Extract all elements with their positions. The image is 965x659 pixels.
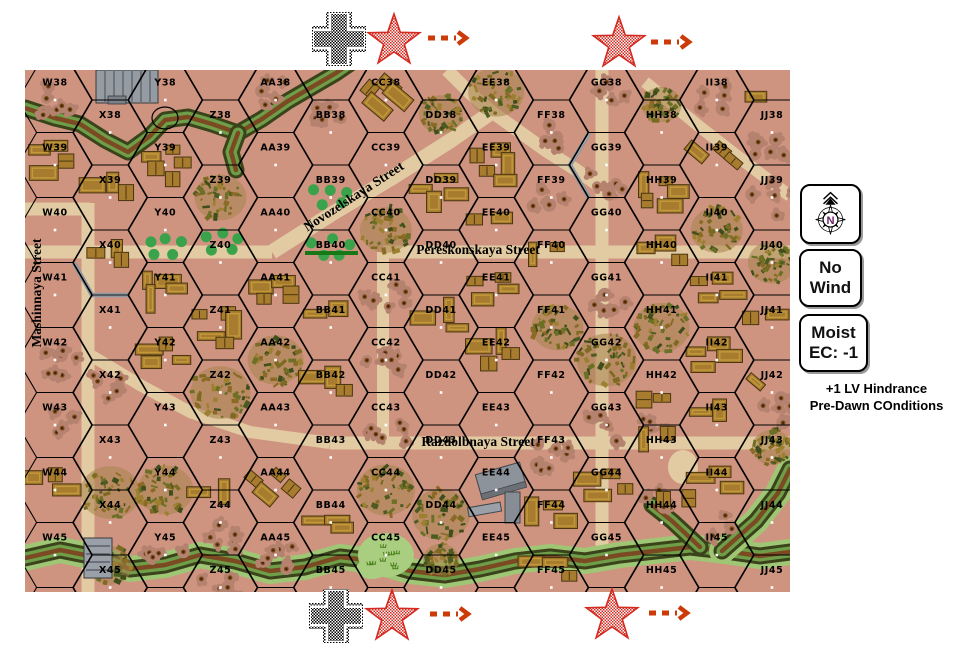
svg-text:Z41: Z41 [209,305,231,316]
svg-text:FF45: FF45 [537,565,566,576]
svg-text:Z42: Z42 [209,370,231,381]
svg-text:X39: X39 [99,175,121,186]
soviet-star-counter [366,590,417,639]
svg-text:EE39: EE39 [482,143,511,154]
svg-text:Z45: Z45 [209,565,231,576]
soviet-star-counter [368,14,419,63]
svg-text:II39: II39 [705,143,728,154]
svg-text:GG45: GG45 [591,533,622,544]
advance-arrow [430,608,468,620]
svg-text:X41: X41 [99,305,121,316]
svg-text:Y39: Y39 [153,143,176,154]
svg-text:EE41: EE41 [482,273,511,284]
svg-text:HH45: HH45 [646,565,678,576]
svg-text:W45: W45 [42,533,68,544]
advance-arrow [649,607,687,619]
svg-text:FF43: FF43 [537,435,566,446]
svg-text:II42: II42 [705,338,728,349]
svg-text:FF41: FF41 [537,305,566,316]
svg-text:AA39: AA39 [260,143,290,154]
svg-text:CC45: CC45 [371,533,401,544]
svg-text:X40: X40 [99,240,121,251]
svg-text:JJ38: JJ38 [760,110,784,121]
svg-text:FF44: FF44 [537,500,566,511]
svg-text:Y44: Y44 [153,468,176,479]
svg-text:BB43: BB43 [316,435,346,446]
svg-text:II44: II44 [705,468,728,479]
svg-text:GG38: GG38 [591,78,622,89]
svg-text:II38: II38 [705,78,728,89]
svg-text:Y42: Y42 [153,338,176,349]
environment-conditions-button[interactable]: Moist EC: -1 [799,314,868,372]
svg-text:BB40: BB40 [316,240,346,251]
svg-text:DD42: DD42 [425,370,456,381]
svg-text:BB45: BB45 [316,565,346,576]
german-cross-counter [312,12,366,66]
game-map[interactable]: W38W39W40W41W42W43W44W45X38X39X40X41X42X… [25,70,790,592]
svg-text:HH40: HH40 [646,240,678,251]
svg-text:CC40: CC40 [371,208,401,219]
svg-text:Y41: Y41 [153,273,176,284]
compass-rose-icon: N [804,188,857,240]
svg-text:DD44: DD44 [425,500,456,511]
svg-text:Z38: Z38 [209,110,231,121]
soviet-star-counter [593,17,644,66]
svg-text:HH38: HH38 [646,110,678,121]
svg-text:FF39: FF39 [537,175,566,186]
svg-text:W44: W44 [42,468,68,479]
svg-text:W41: W41 [42,273,68,284]
svg-text:JJ43: JJ43 [760,435,784,446]
svg-text:EE45: EE45 [482,533,511,544]
svg-text:HH41: HH41 [646,305,678,316]
svg-text:BB42: BB42 [316,370,346,381]
wind-line2: Wind [810,278,851,298]
svg-text:Mashinnaya Street: Mashinnaya Street [29,238,44,347]
north-compass-button[interactable]: N [800,184,861,244]
svg-text:AA44: AA44 [260,468,290,479]
svg-text:FF42: FF42 [537,370,566,381]
svg-text:JJ42: JJ42 [760,370,784,381]
svg-text:II40: II40 [705,208,728,219]
german-cross-counter [309,589,363,643]
svg-text:GG43: GG43 [591,403,622,414]
svg-text:DD41: DD41 [425,305,456,316]
svg-text:X43: X43 [99,435,121,446]
svg-text:BB38: BB38 [316,110,346,121]
svg-text:Z43: Z43 [209,435,231,446]
svg-text:X45: X45 [99,565,121,576]
svg-text:JJ45: JJ45 [760,565,784,576]
svg-text:AA38: AA38 [260,78,290,89]
svg-text:GG42: GG42 [591,338,622,349]
svg-text:Z40: Z40 [209,240,231,251]
svg-text:HH42: HH42 [646,370,678,381]
advance-arrow [428,32,466,44]
svg-text:EE42: EE42 [482,338,511,349]
svg-text:Z44: Z44 [209,500,231,511]
map-layers: W38W39W40W41W42W43W44W45X38X39X40X41X42X… [25,70,790,592]
svg-text:Y43: Y43 [153,403,176,414]
svg-text:EE43: EE43 [482,403,511,414]
svg-text:JJ39: JJ39 [760,175,784,186]
soviet-star-counter [586,589,637,638]
svg-text:BB41: BB41 [316,305,346,316]
svg-text:GG41: GG41 [591,273,622,284]
svg-text:AA40: AA40 [260,208,290,219]
svg-text:X38: X38 [99,110,121,121]
svg-text:AA41: AA41 [260,273,290,284]
svg-text:HH39: HH39 [646,175,678,186]
vasl-game-window: W38W39W40W41W42W43W44W45X38X39X40X41X42X… [0,0,965,659]
svg-text:BB44: BB44 [316,500,346,511]
svg-text:W43: W43 [42,403,68,414]
svg-text:CC44: CC44 [371,468,401,479]
svg-text:CC38: CC38 [371,78,401,89]
svg-text:AA45: AA45 [260,533,290,544]
svg-text:CC41: CC41 [371,273,401,284]
svg-text:GG44: GG44 [591,468,622,479]
svg-text:GG39: GG39 [591,143,622,154]
svg-text:W42: W42 [42,338,68,349]
svg-text:Razdolbnaya Street: Razdolbnaya Street [421,434,535,449]
svg-text:CC39: CC39 [371,143,401,154]
svg-text:HH43: HH43 [646,435,678,446]
svg-text:AA42: AA42 [260,338,290,349]
svg-text:W40: W40 [42,208,68,219]
svg-text:EE38: EE38 [482,78,511,89]
svg-text:EE40: EE40 [482,208,511,219]
svg-text:Y38: Y38 [153,78,176,89]
svg-text:CC42: CC42 [371,338,401,349]
ec-line1: Moist [811,323,855,343]
svg-text:GG40: GG40 [591,208,622,219]
svg-text:JJ44: JJ44 [760,500,784,511]
scenario-conditions-note: +1 LV Hindrance Pre-Dawn COnditions [788,380,965,414]
svg-text:EE44: EE44 [482,468,511,479]
svg-text:X42: X42 [99,370,121,381]
note-line1: +1 LV Hindrance [788,380,965,397]
note-line2: Pre-Dawn COnditions [788,397,965,414]
svg-text:Y45: Y45 [153,533,176,544]
svg-text:II43: II43 [705,403,728,414]
svg-text:Z39: Z39 [209,175,231,186]
compass-north-label: N [826,215,834,227]
wind-status-button[interactable]: No Wind [799,249,862,307]
wind-line1: No [819,258,842,278]
svg-text:W38: W38 [42,78,68,89]
svg-text:II45: II45 [705,533,728,544]
svg-text:X44: X44 [99,500,121,511]
svg-text:JJ41: JJ41 [760,305,784,316]
svg-text:FF38: FF38 [537,110,566,121]
svg-text:BB39: BB39 [316,175,346,186]
svg-text:CC43: CC43 [371,403,401,414]
svg-text:DD38: DD38 [425,110,456,121]
advance-arrow [651,36,689,48]
svg-text:W39: W39 [42,143,68,154]
ec-line2: EC: -1 [809,343,858,363]
svg-text:FF40: FF40 [537,240,566,251]
svg-text:DD45: DD45 [425,565,456,576]
svg-text:Y40: Y40 [153,208,176,219]
svg-text:AA43: AA43 [260,403,290,414]
svg-text:DD39: DD39 [425,175,456,186]
svg-text:II41: II41 [705,273,728,284]
svg-text:JJ40: JJ40 [760,240,784,251]
svg-text:Pereskonskaya Street: Pereskonskaya Street [416,242,540,257]
svg-text:HH44: HH44 [646,500,678,511]
